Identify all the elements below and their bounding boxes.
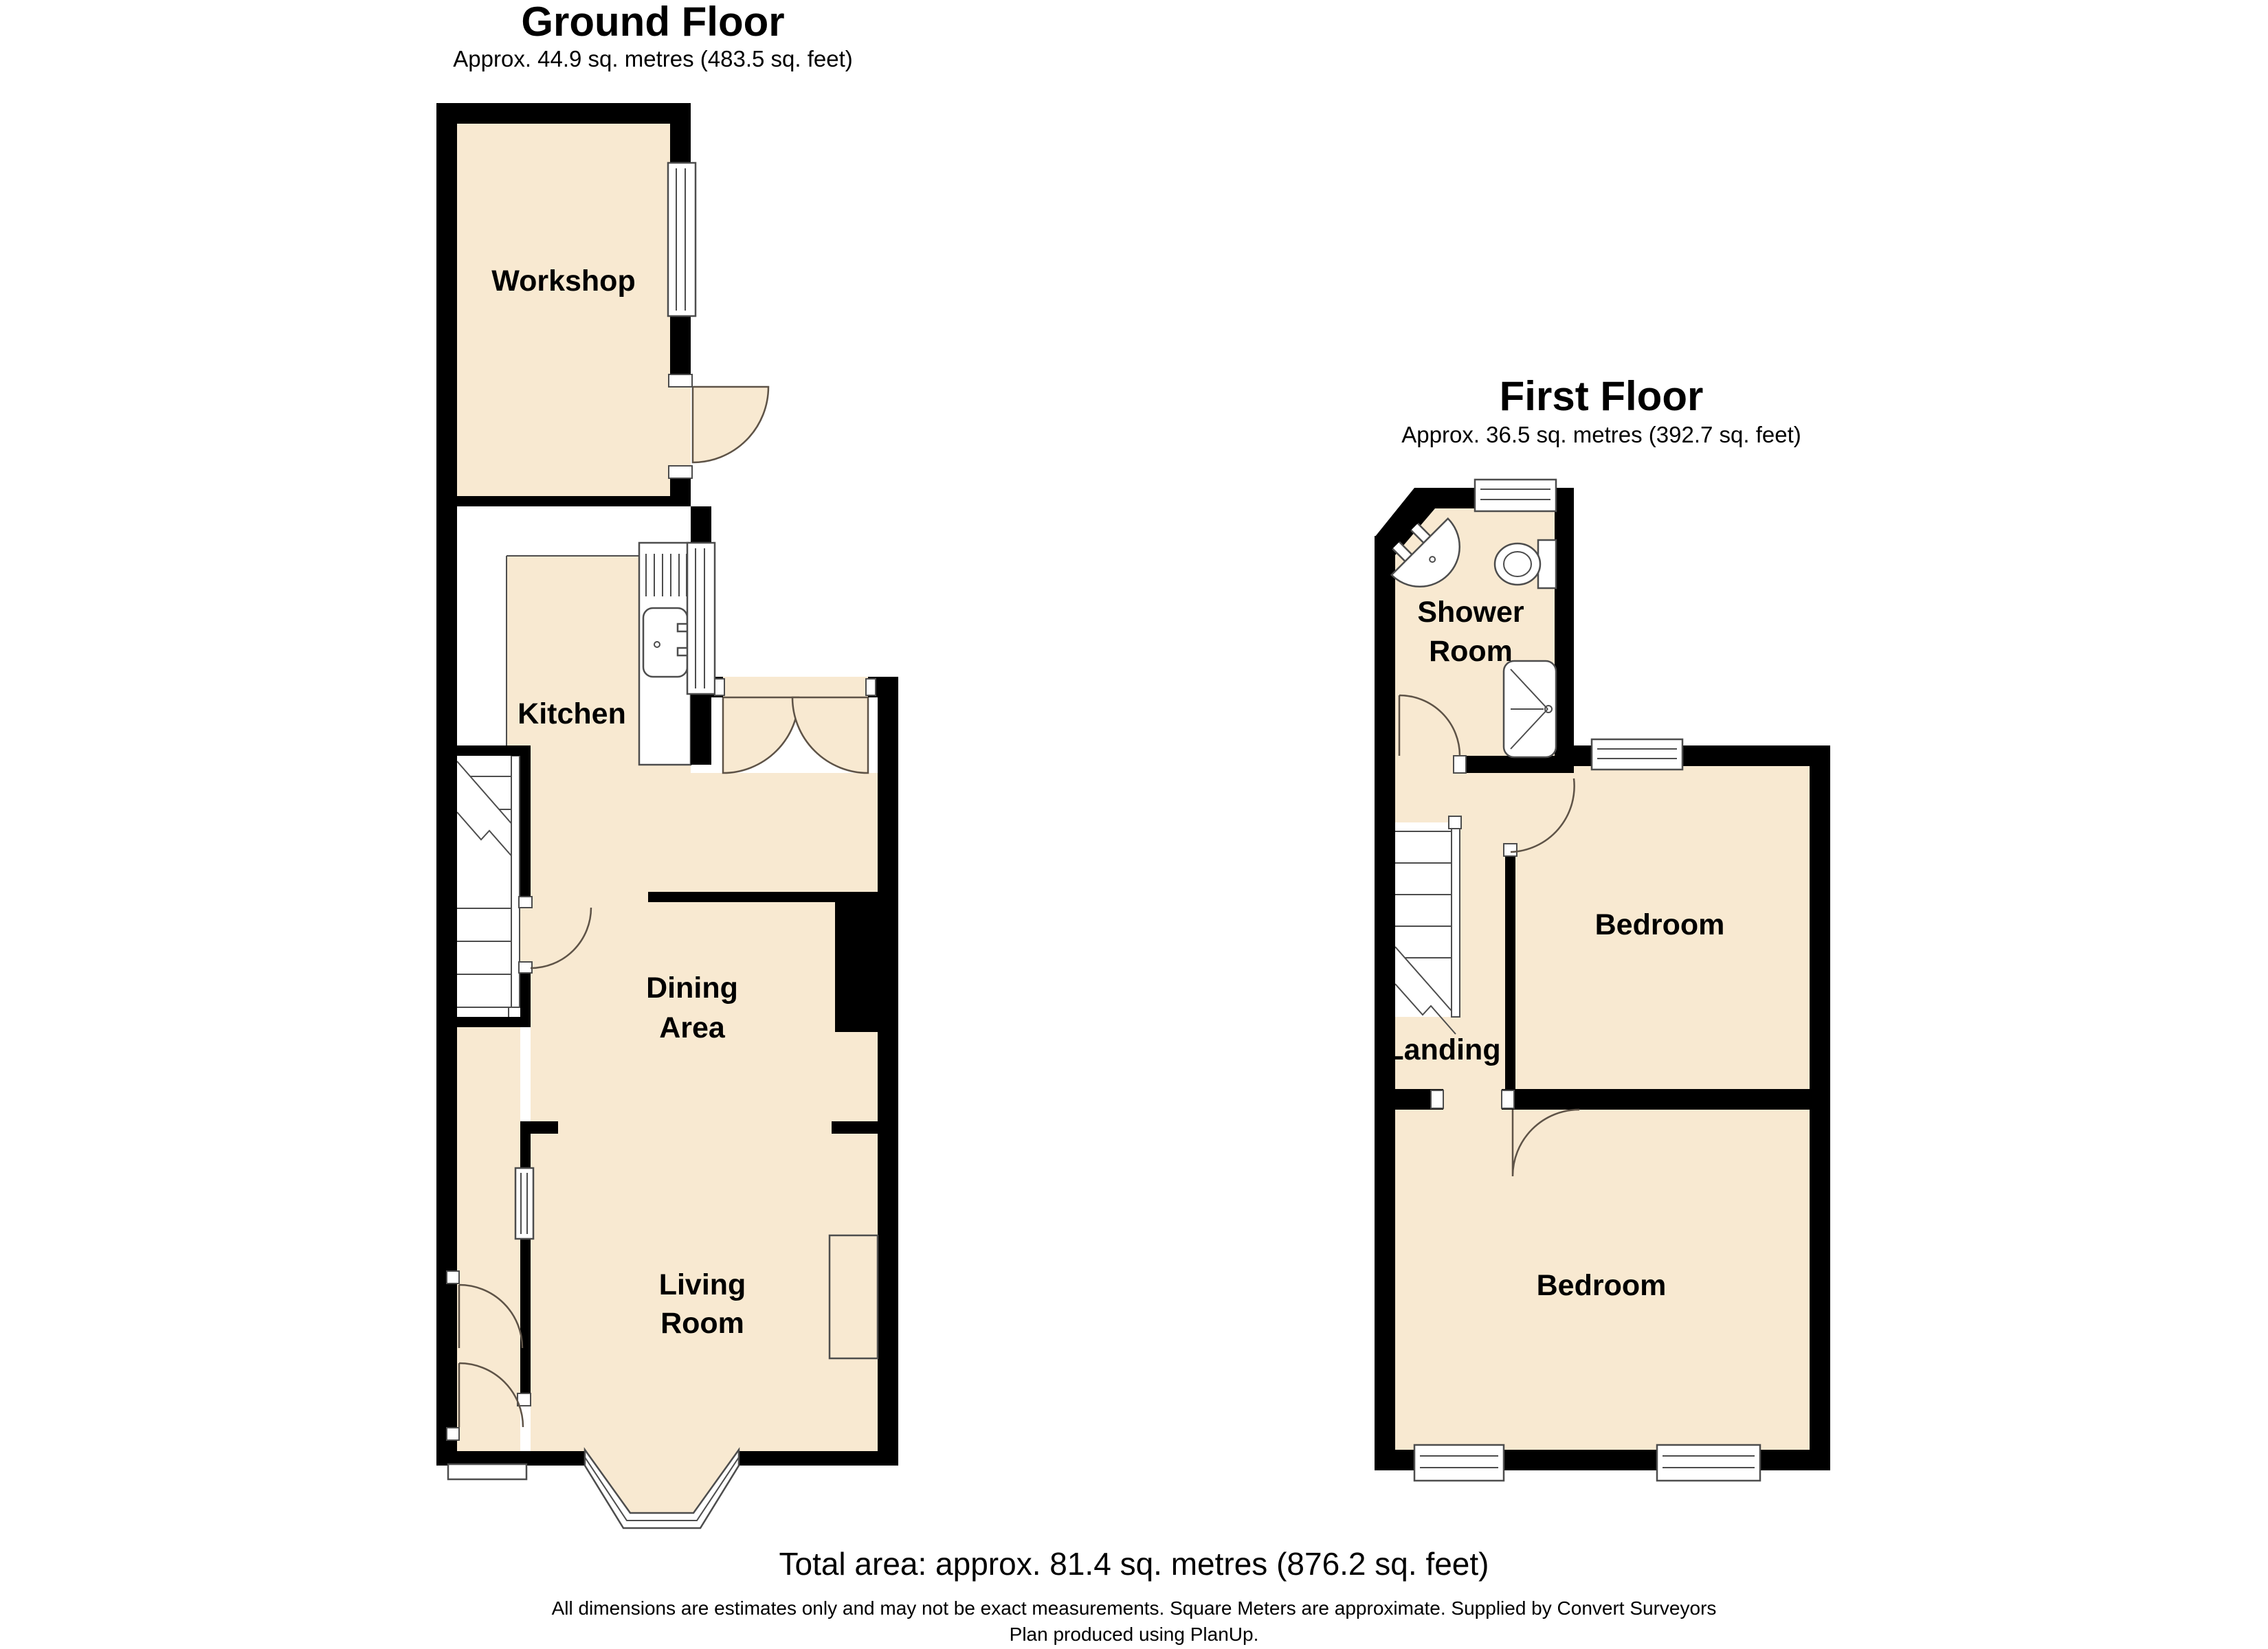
toilet-icon: [1495, 540, 1556, 588]
window-icon: [687, 543, 715, 694]
wall-dining-partition: [648, 892, 878, 902]
window-icon: [1475, 480, 1556, 511]
wall-hall-living: [520, 1239, 531, 1395]
label-bedroom-back: Bedroom: [1537, 1269, 1667, 1302]
label-shower-2: Room: [1429, 635, 1513, 668]
door-jamb: [447, 1428, 459, 1440]
stairs-door-gap: [520, 908, 531, 962]
floorplan-drawing: Ground Floor Approx. 44.9 sq. metres (48…: [0, 0, 2268, 1649]
door-jamb: [669, 466, 692, 478]
label-living-2: Room: [660, 1307, 744, 1340]
workshop-door-swing: [693, 387, 768, 462]
wall-landing-bedroom: [1505, 855, 1515, 1089]
workshop-door-gap: [670, 387, 691, 466]
label-living-1: Living: [659, 1268, 746, 1301]
french-door-gap: [723, 677, 868, 697]
label-bedroom-front: Bedroom: [1595, 908, 1725, 941]
door-jamb: [447, 1271, 459, 1283]
french-door-left-swing: [723, 697, 799, 773]
living-room-furniture: [830, 1235, 878, 1358]
door-jamb: [1502, 1090, 1514, 1108]
wall-kitchen-right: [691, 694, 711, 765]
wall-hall-living: [520, 1134, 531, 1170]
window-icon: [1414, 1445, 1504, 1481]
chimney-breast: [835, 902, 878, 1032]
door-jamb: [866, 679, 876, 695]
first-floor-plan: First Floor Approx. 36.5 sq. metres (392…: [1373, 373, 1830, 1481]
wall-left-outer: [436, 103, 457, 1466]
wall-kitchen-right: [691, 506, 711, 543]
door-jamb: [1454, 756, 1466, 773]
footer: Total area: approx. 81.4 sq. metres (876…: [552, 1546, 1717, 1645]
wall-bedroom-top: [1682, 745, 1830, 766]
door-jamb: [519, 897, 532, 908]
newel-post: [1449, 816, 1461, 829]
wall-right-outer: [878, 697, 898, 1466]
wall-divider-stub-left: [520, 1121, 558, 1134]
wall-bottom: [1504, 1450, 1657, 1470]
window-icon: [515, 1168, 533, 1239]
door-jamb: [669, 374, 692, 387]
wall-mid: [1502, 1089, 1810, 1110]
wall-top: [1414, 488, 1476, 508]
label-dining-1: Dining: [646, 972, 738, 1005]
produced-by-text: Plan produced using PlanUp.: [1010, 1624, 1259, 1645]
first-floor-subtitle: Approx. 36.5 sq. metres (392.7 sq. feet): [1401, 422, 1801, 447]
label-workshop: Workshop: [491, 265, 635, 298]
door-jamb: [519, 962, 532, 973]
disclaimer-text: All dimensions are estimates only and ma…: [552, 1597, 1717, 1619]
label-shower-1: Shower: [1417, 596, 1524, 629]
window-icon: [1657, 1445, 1760, 1481]
door-jamb: [1504, 844, 1517, 856]
window-icon: [1592, 739, 1682, 770]
door-jamb: [715, 679, 724, 695]
wall-bottom: [1375, 1450, 1416, 1470]
wall-workshop-right: [670, 316, 691, 374]
wall-bottom: [1760, 1450, 1830, 1470]
label-dining-2: Area: [659, 1011, 726, 1044]
window-icon: [668, 163, 696, 316]
shower-door-gap: [1395, 756, 1460, 773]
ground-floor-title: Ground Floor: [521, 0, 784, 45]
ground-floor-plan: Ground Floor Approx. 44.9 sq. metres (48…: [436, 0, 898, 1528]
french-door-right-swing: [792, 697, 868, 773]
stairs-first-icon: [1395, 816, 1461, 1034]
door-jamb: [1431, 1090, 1443, 1108]
wall-stairs-top: [457, 745, 531, 756]
room-rear-lobby: [648, 765, 878, 893]
stairs-ground-icon: [457, 756, 521, 1020]
room-workshop: [457, 124, 670, 496]
wall-stairs-bottom: [457, 1017, 531, 1027]
bedroom-back-door-gap: [1443, 1089, 1502, 1110]
stairs-rail: [511, 756, 520, 1017]
wall-workshop-top: [436, 103, 691, 124]
wall-shower-right: [1555, 488, 1574, 773]
total-area-text: Total area: approx. 81.4 sq. metres (876…: [779, 1546, 1489, 1582]
floorplan-page: Ground Floor Approx. 44.9 sq. metres (48…: [0, 0, 2268, 1649]
stairs-rail: [1452, 822, 1460, 1017]
wall-divider-stub-right: [832, 1121, 878, 1134]
room-entrance-hall: [457, 1027, 520, 1451]
wall-shower-bottom: [1459, 756, 1574, 773]
label-kitchen: Kitchen: [518, 697, 626, 730]
wall-workshop-bottom: [457, 496, 691, 506]
wall-right-outer: [1810, 745, 1830, 1470]
first-floor-title: First Floor: [1500, 373, 1704, 419]
wall-left-outer: [1375, 536, 1395, 1470]
label-landing: Landing: [1386, 1033, 1500, 1066]
front-door-sill: [448, 1464, 526, 1479]
wall-front-bottom: [739, 1451, 898, 1466]
wall-workshop-right: [670, 103, 691, 163]
shower-tray-icon: [1504, 661, 1556, 757]
ground-floor-subtitle: Approx. 44.9 sq. metres (483.5 sq. feet): [453, 46, 852, 71]
wall-stairs-side: [520, 756, 531, 908]
